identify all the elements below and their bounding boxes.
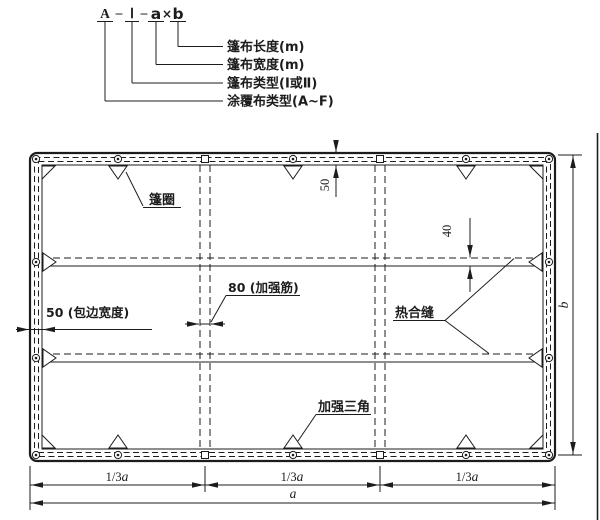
grommet-hole <box>548 454 551 457</box>
grommet-hole <box>292 158 295 161</box>
grommet-hole <box>35 261 38 264</box>
callouts: 篷圈 80 (加强筋) 50 (包边宽度) 热合缝 加强三角 50 4 <box>16 140 514 441</box>
code-times-sign: × <box>162 7 172 21</box>
callout-heat-seam-leader <box>445 321 489 354</box>
thirds-frac: 1/3 <box>456 470 472 484</box>
code-separator: – <box>140 5 148 20</box>
callout-grommet-leader <box>126 172 143 206</box>
code-width-var: a <box>151 5 161 23</box>
width-dim-text: a <box>290 486 297 501</box>
thirds-dim-text: 1/3a <box>456 469 479 484</box>
figure-canvas: A – Ⅰ – a × b 篷布长度(m) 篷布宽度(m) 篷布类型(Ⅰ或Ⅱ) … <box>0 0 600 520</box>
label-type: 篷布类型(Ⅰ或Ⅱ) <box>226 76 317 92</box>
callout-triangle-label: 加强三角 <box>317 399 370 415</box>
grommet-hole <box>35 454 38 457</box>
seam-dim-text: 40 <box>440 225 454 238</box>
callout-grommet-label: 篷圈 <box>148 192 175 208</box>
corner-triangle <box>42 435 55 448</box>
grommet-hole <box>35 357 38 360</box>
callout-heat-seam-label: 热合缝 <box>395 305 434 321</box>
code-tarp-type: Ⅰ <box>130 6 134 21</box>
top-dim-text: 50 <box>318 179 332 192</box>
callout-rib-leader <box>211 296 226 323</box>
grommet-hole <box>117 158 120 161</box>
grommet-hole <box>465 454 468 457</box>
corner-triangle <box>530 435 543 448</box>
label-coated-fabric: 涂覆布类型(A~F) <box>227 94 334 110</box>
grommet-hole <box>548 357 551 360</box>
rib-end-square <box>202 156 209 163</box>
rib-end-square <box>202 452 209 459</box>
reinforce-triangle <box>109 435 127 448</box>
label-width: 篷布宽度(m) <box>226 57 304 73</box>
thirds-dim-text: 1/3a <box>106 469 129 484</box>
thirds-var: a <box>122 469 129 484</box>
grommet-hole <box>35 158 38 161</box>
reinforce-triangle <box>529 349 542 367</box>
corner-triangle <box>530 166 543 179</box>
thirds-var: a <box>472 469 479 484</box>
grommet-hole <box>548 261 551 264</box>
callout-binding-label: 50 (包边宽度) <box>46 305 129 320</box>
grommet-hole <box>548 158 551 161</box>
callout-rib-label: 80 (加强筋) <box>228 280 299 295</box>
thirds-var: a <box>297 469 304 484</box>
thirds-frac: 1/3 <box>106 470 122 484</box>
reinforce-triangle <box>43 349 56 367</box>
thirds-frac: 1/3 <box>281 470 297 484</box>
reinforce-triangle <box>457 435 475 448</box>
label-length: 篷布长度(m) <box>226 39 304 55</box>
thirds-dim-text: 1/3a <box>281 469 304 484</box>
height-dim-text: b <box>556 301 571 308</box>
tarpaulin-spec-figure: A – Ⅰ – a × b 篷布长度(m) 篷布宽度(m) 篷布类型(Ⅰ或Ⅱ) … <box>0 0 600 520</box>
grommet-hole <box>465 158 468 161</box>
reinforce-triangle <box>284 166 302 179</box>
reinforce-triangle <box>457 166 475 179</box>
reinforce-triangle <box>43 253 56 271</box>
grommet-hole <box>117 454 120 457</box>
reinforce-triangle <box>529 253 542 271</box>
callout-heat-seam-leader <box>445 259 514 321</box>
code-length-var: b <box>172 5 183 23</box>
rib-end-square <box>377 156 384 163</box>
grommet-hole <box>292 454 295 457</box>
reinforce-triangle <box>284 435 302 448</box>
reinforce-triangle <box>109 166 127 179</box>
rib-end-square <box>377 452 384 459</box>
code-separator: – <box>115 5 123 20</box>
callout-triangle-leader <box>298 415 316 442</box>
designation-diagram: A – Ⅰ – a × b 篷布长度(m) 篷布宽度(m) 篷布类型(Ⅰ或Ⅱ) … <box>97 5 334 110</box>
corner-triangle <box>42 166 55 179</box>
code-fabric-type: A <box>100 6 110 21</box>
